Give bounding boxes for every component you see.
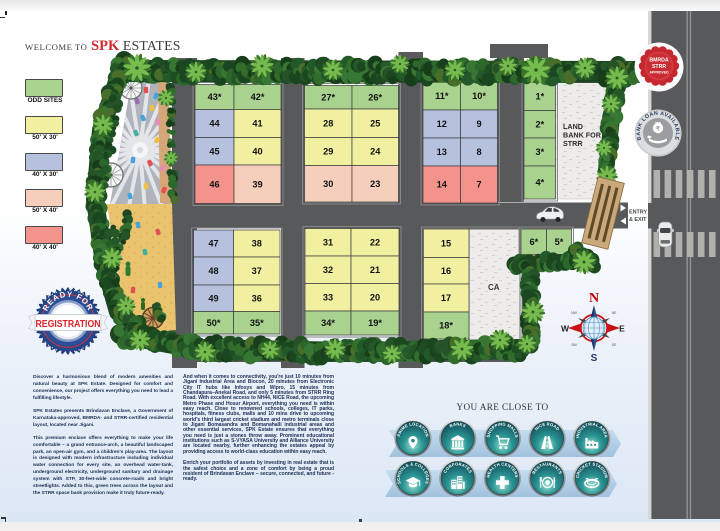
svg-text:25: 25 bbox=[370, 119, 380, 129]
svg-text:41: 41 bbox=[252, 119, 262, 129]
svg-text:16: 16 bbox=[441, 266, 451, 276]
svg-text:40: 40 bbox=[252, 146, 262, 156]
svg-text:STRR: STRR bbox=[563, 139, 583, 148]
svg-text:APPROVED: APPROVED bbox=[649, 71, 669, 75]
svg-text:28: 28 bbox=[323, 119, 333, 129]
svg-text:E: E bbox=[619, 324, 625, 334]
svg-text:17: 17 bbox=[441, 293, 451, 303]
svg-text:45: 45 bbox=[209, 146, 219, 156]
svg-text:7: 7 bbox=[476, 180, 481, 190]
svg-text:21: 21 bbox=[370, 265, 380, 275]
svg-text:SE: SE bbox=[612, 343, 617, 347]
svg-text:SW: SW bbox=[571, 343, 577, 347]
svg-text:REGISTRATION: REGISTRATION bbox=[36, 319, 101, 330]
svg-text:2*: 2* bbox=[535, 120, 544, 130]
svg-text:NW: NW bbox=[571, 311, 578, 315]
svg-text:15: 15 bbox=[441, 238, 451, 248]
svg-text:19*: 19* bbox=[368, 318, 382, 328]
svg-text:20: 20 bbox=[370, 292, 380, 302]
svg-text:38: 38 bbox=[252, 239, 262, 249]
svg-text:26*: 26* bbox=[368, 93, 382, 103]
svg-text:13: 13 bbox=[437, 147, 447, 157]
svg-text:35*: 35* bbox=[250, 318, 264, 328]
svg-text:CA: CA bbox=[488, 283, 500, 292]
svg-text:3*: 3* bbox=[535, 147, 544, 157]
svg-text:4*: 4* bbox=[535, 178, 544, 188]
svg-text:12: 12 bbox=[437, 119, 447, 129]
svg-text:8: 8 bbox=[476, 147, 481, 157]
svg-text:34*: 34* bbox=[321, 318, 335, 328]
svg-text:24: 24 bbox=[370, 147, 381, 157]
svg-text:36: 36 bbox=[252, 293, 262, 303]
svg-text:23: 23 bbox=[370, 179, 380, 189]
svg-text:NE: NE bbox=[612, 311, 618, 315]
svg-text:1*: 1* bbox=[535, 92, 544, 102]
svg-text:W: W bbox=[561, 324, 570, 334]
svg-text:18*: 18* bbox=[439, 321, 453, 331]
svg-text:44: 44 bbox=[209, 119, 220, 129]
svg-text:33: 33 bbox=[323, 292, 333, 302]
svg-text:N: N bbox=[589, 291, 599, 306]
svg-text:& EXIT: & EXIT bbox=[629, 217, 647, 223]
svg-text:48: 48 bbox=[208, 266, 218, 276]
svg-text:49: 49 bbox=[208, 293, 218, 303]
svg-text:30: 30 bbox=[323, 179, 333, 189]
svg-text:₹: ₹ bbox=[656, 126, 660, 133]
svg-text:10*: 10* bbox=[472, 91, 486, 101]
svg-text:5*: 5* bbox=[555, 237, 564, 247]
svg-text:37: 37 bbox=[252, 266, 262, 276]
svg-text:43*: 43* bbox=[208, 92, 222, 102]
svg-text:22: 22 bbox=[370, 237, 380, 247]
svg-text:BMRDA: BMRDA bbox=[649, 58, 669, 64]
svg-text:46: 46 bbox=[209, 179, 219, 189]
svg-text:ENTRY: ENTRY bbox=[629, 210, 647, 216]
svg-text:STRR: STRR bbox=[652, 64, 666, 70]
svg-text:27*: 27* bbox=[321, 93, 335, 103]
svg-text:39: 39 bbox=[252, 179, 262, 189]
svg-text:47: 47 bbox=[208, 239, 218, 249]
svg-text:S: S bbox=[591, 353, 598, 364]
svg-text:50*: 50* bbox=[207, 318, 221, 328]
svg-text:29: 29 bbox=[323, 147, 333, 157]
svg-text:14: 14 bbox=[437, 180, 448, 190]
svg-text:6*: 6* bbox=[529, 237, 538, 247]
svg-text:31: 31 bbox=[323, 237, 333, 247]
svg-text:9: 9 bbox=[476, 119, 481, 129]
svg-text:42*: 42* bbox=[251, 92, 265, 102]
svg-text:32: 32 bbox=[323, 265, 333, 275]
svg-text:11*: 11* bbox=[435, 91, 449, 101]
